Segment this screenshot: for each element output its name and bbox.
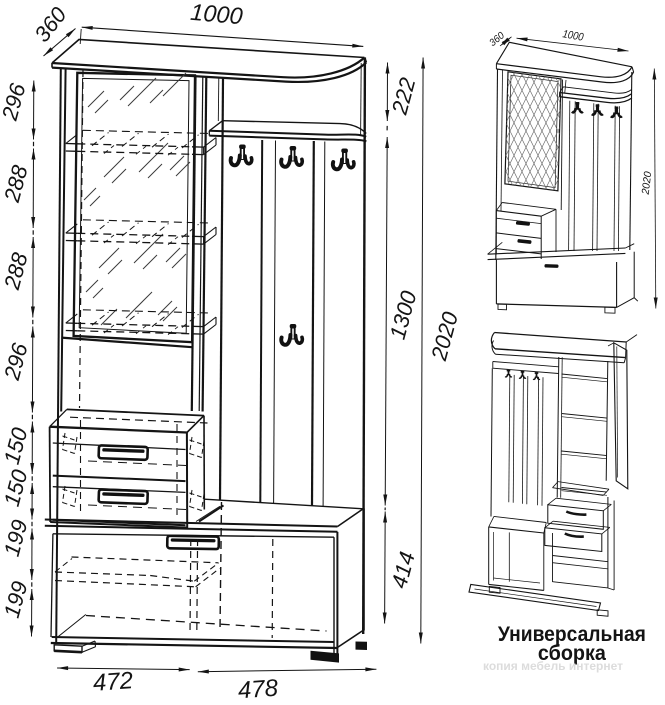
svg-text:копия мебель интернет: копия мебель интернет [483,659,623,673]
svg-text:472: 472 [92,667,134,697]
svg-text:478: 478 [237,675,279,700]
svg-text:1000: 1000 [189,0,243,29]
